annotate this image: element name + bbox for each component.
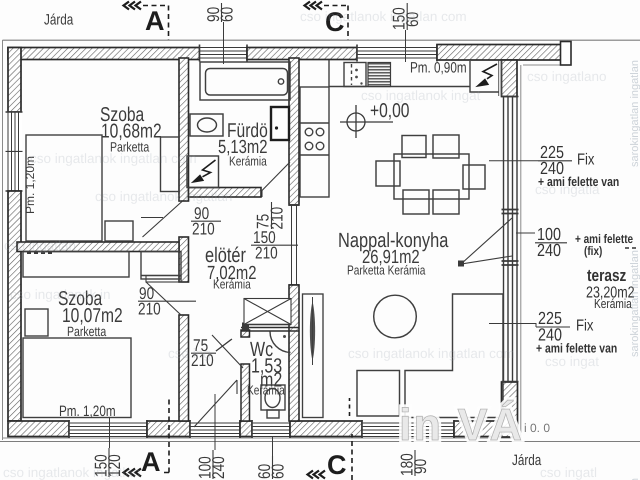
svg-text:cso ingatlano: cso ingatlano	[527, 69, 607, 84]
svg-text:Kerámia: Kerámia	[247, 383, 285, 398]
svg-text:Parketta Kerámia: Parketta Kerámia	[347, 263, 426, 278]
svg-text:210: 210	[268, 207, 287, 230]
svg-text:Kerámia: Kerámia	[213, 277, 251, 292]
svg-text:cso ingatlanok ingat: cso ingatlanok ingat	[361, 88, 481, 103]
svg-text:A: A	[141, 447, 161, 477]
svg-text:210: 210	[138, 300, 161, 319]
svg-text:cso ing: cso ing	[168, 346, 211, 361]
svg-text:60: 60	[218, 7, 237, 22]
svg-text:Járda: Járda	[44, 12, 74, 29]
svg-text:Pm. 0,90m: Pm. 0,90m	[410, 60, 467, 77]
svg-text:cso ingatlanok in: cso ingatlanok in	[10, 287, 111, 302]
svg-text:terasz: terasz	[587, 266, 626, 285]
svg-text:i 0. 0: i 0. 0	[524, 421, 550, 435]
svg-text:C: C	[327, 450, 347, 480]
svg-text:Fix: Fix	[577, 152, 594, 169]
svg-text:90: 90	[411, 459, 430, 474]
svg-text:Parketta: Parketta	[67, 324, 107, 339]
svg-text:Járda: Járda	[512, 452, 542, 469]
svg-text:(fix): (fix)	[584, 244, 602, 258]
svg-text:cso ingat: cso ingat	[545, 354, 599, 369]
svg-text:+0,00: +0,00	[370, 100, 409, 122]
svg-text:60: 60	[269, 464, 288, 479]
svg-text:Kerámia: Kerámia	[594, 296, 632, 311]
svg-text:210: 210	[255, 244, 278, 263]
svg-text:Fix: Fix	[576, 318, 593, 335]
svg-text:sarokingatlan ingatlan: sarokingatlan ingatlan	[629, 60, 640, 167]
svg-text:cso ingatlanok ingatlan: cso ingatlanok ingatlan	[3, 465, 140, 480]
svg-text:A: A	[145, 6, 165, 36]
svg-text:210: 210	[192, 220, 215, 239]
svg-text:cso ingatlanok ingatlan com: cso ingatlanok ingatlan com	[30, 151, 197, 166]
svg-text:cso ingatl: cso ingatl	[540, 465, 597, 480]
svg-text:sarokingatlan ingatlan: sarokingatlan ingatlan	[629, 250, 640, 357]
svg-text:cso ingatlanok ingatlan com: cso ingatlanok ingatlan com	[348, 346, 515, 361]
svg-text:Pm. 1,20m: Pm. 1,20m	[59, 403, 116, 420]
svg-text:240: 240	[209, 456, 228, 479]
svg-text:Kerámia: Kerámia	[229, 154, 267, 169]
svg-text:cso ingatlan: cso ingatlan	[4, 238, 76, 253]
svg-text:cso ingatla: cso ingatla	[535, 182, 600, 197]
svg-text:in VÁ: in VÁ	[399, 399, 524, 450]
svg-text:cso ingatlanok ingatlan com: cso ingatlanok ingatlan com	[300, 9, 467, 24]
svg-text:cso ingatlanok ingatlan: cso ingatlanok ingatlan	[95, 189, 232, 204]
